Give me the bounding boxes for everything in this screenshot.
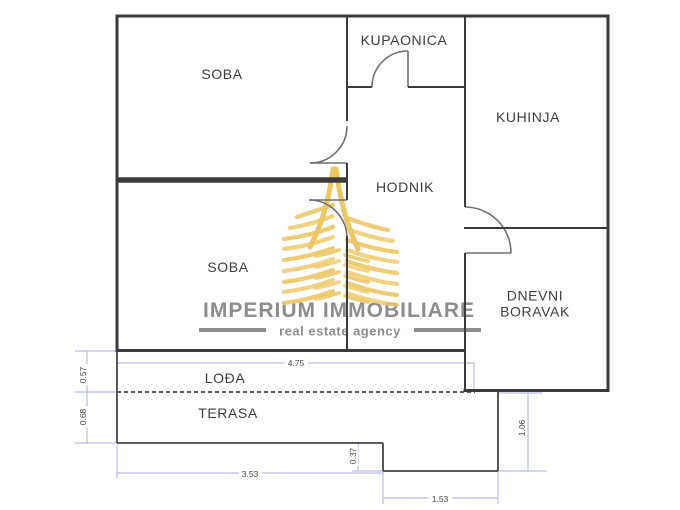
door-soba-upper xyxy=(310,126,347,163)
logo-building-icon xyxy=(284,169,397,305)
door-kupaonica xyxy=(372,51,408,87)
dimension-lines xyxy=(75,351,547,504)
walls xyxy=(116,15,610,392)
door-dnevni-boravak xyxy=(465,207,511,253)
doors xyxy=(309,51,511,253)
floorplan-canvas: IMPERIUM IMMOBILIARE real estate agency xyxy=(0,0,680,510)
floorplan-drawing xyxy=(0,0,680,510)
terrace-outline xyxy=(117,350,498,471)
